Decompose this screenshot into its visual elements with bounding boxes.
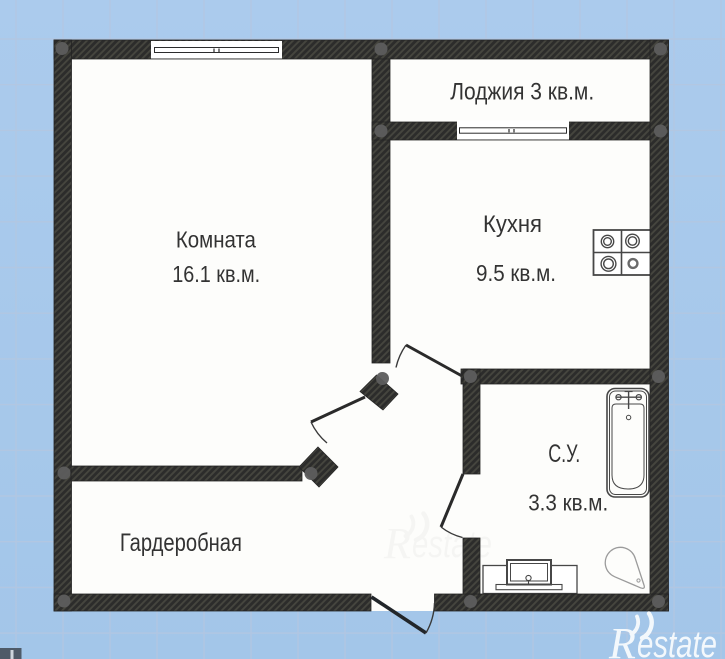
svg-text:Комната: Комната bbox=[176, 227, 257, 253]
svg-text:estate: estate bbox=[637, 624, 717, 659]
svg-text:С.У.: С.У. bbox=[548, 440, 580, 468]
svg-text:16.1 кв.м.: 16.1 кв.м. bbox=[172, 261, 260, 287]
svg-text:Гардеробная: Гардеробная bbox=[120, 529, 242, 557]
svg-text:9.5 кв.м.: 9.5 кв.м. bbox=[476, 260, 556, 286]
svg-text:3.3 кв.м.: 3.3 кв.м. bbox=[528, 490, 608, 516]
svg-text:R: R bbox=[383, 519, 411, 568]
svg-text:Кухня: Кухня bbox=[483, 211, 542, 238]
svg-text:Лоджия 3 кв.м.: Лоджия 3 кв.м. bbox=[450, 79, 594, 106]
svg-text:estate: estate bbox=[412, 524, 492, 566]
svg-text:R: R bbox=[608, 619, 636, 659]
